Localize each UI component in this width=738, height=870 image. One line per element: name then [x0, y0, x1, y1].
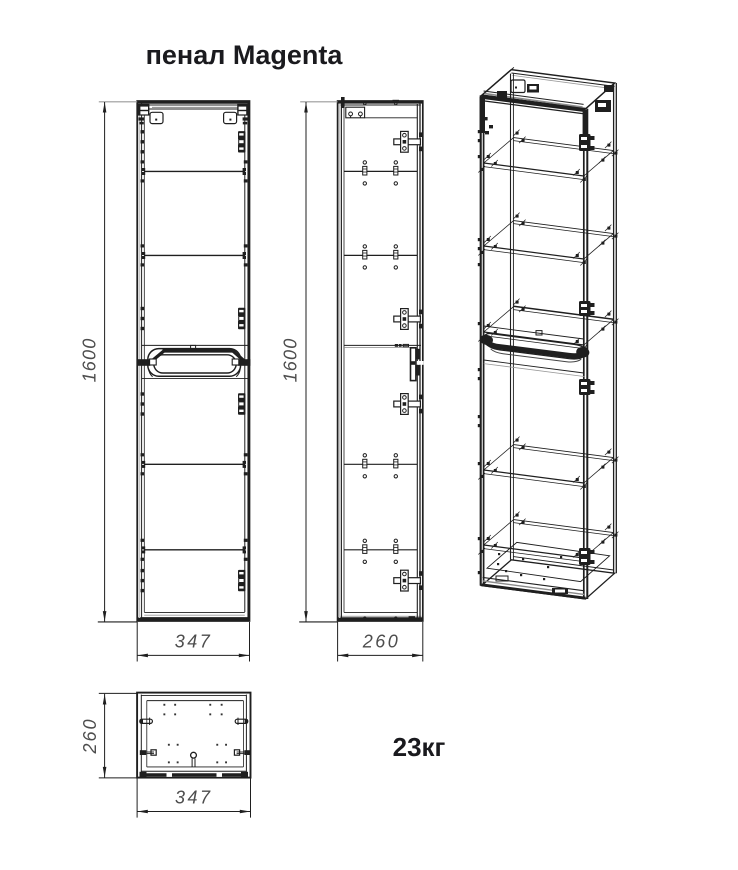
- svg-text:347: 347: [175, 632, 213, 652]
- svg-text:1600: 1600: [281, 338, 301, 383]
- svg-text:пенал Magenta: пенал Magenta: [146, 40, 344, 70]
- svg-text:260: 260: [80, 717, 100, 754]
- svg-text:1600: 1600: [80, 338, 100, 383]
- svg-text:347: 347: [175, 788, 213, 808]
- svg-text:260: 260: [362, 632, 401, 652]
- svg-text:23кг: 23кг: [393, 732, 446, 762]
